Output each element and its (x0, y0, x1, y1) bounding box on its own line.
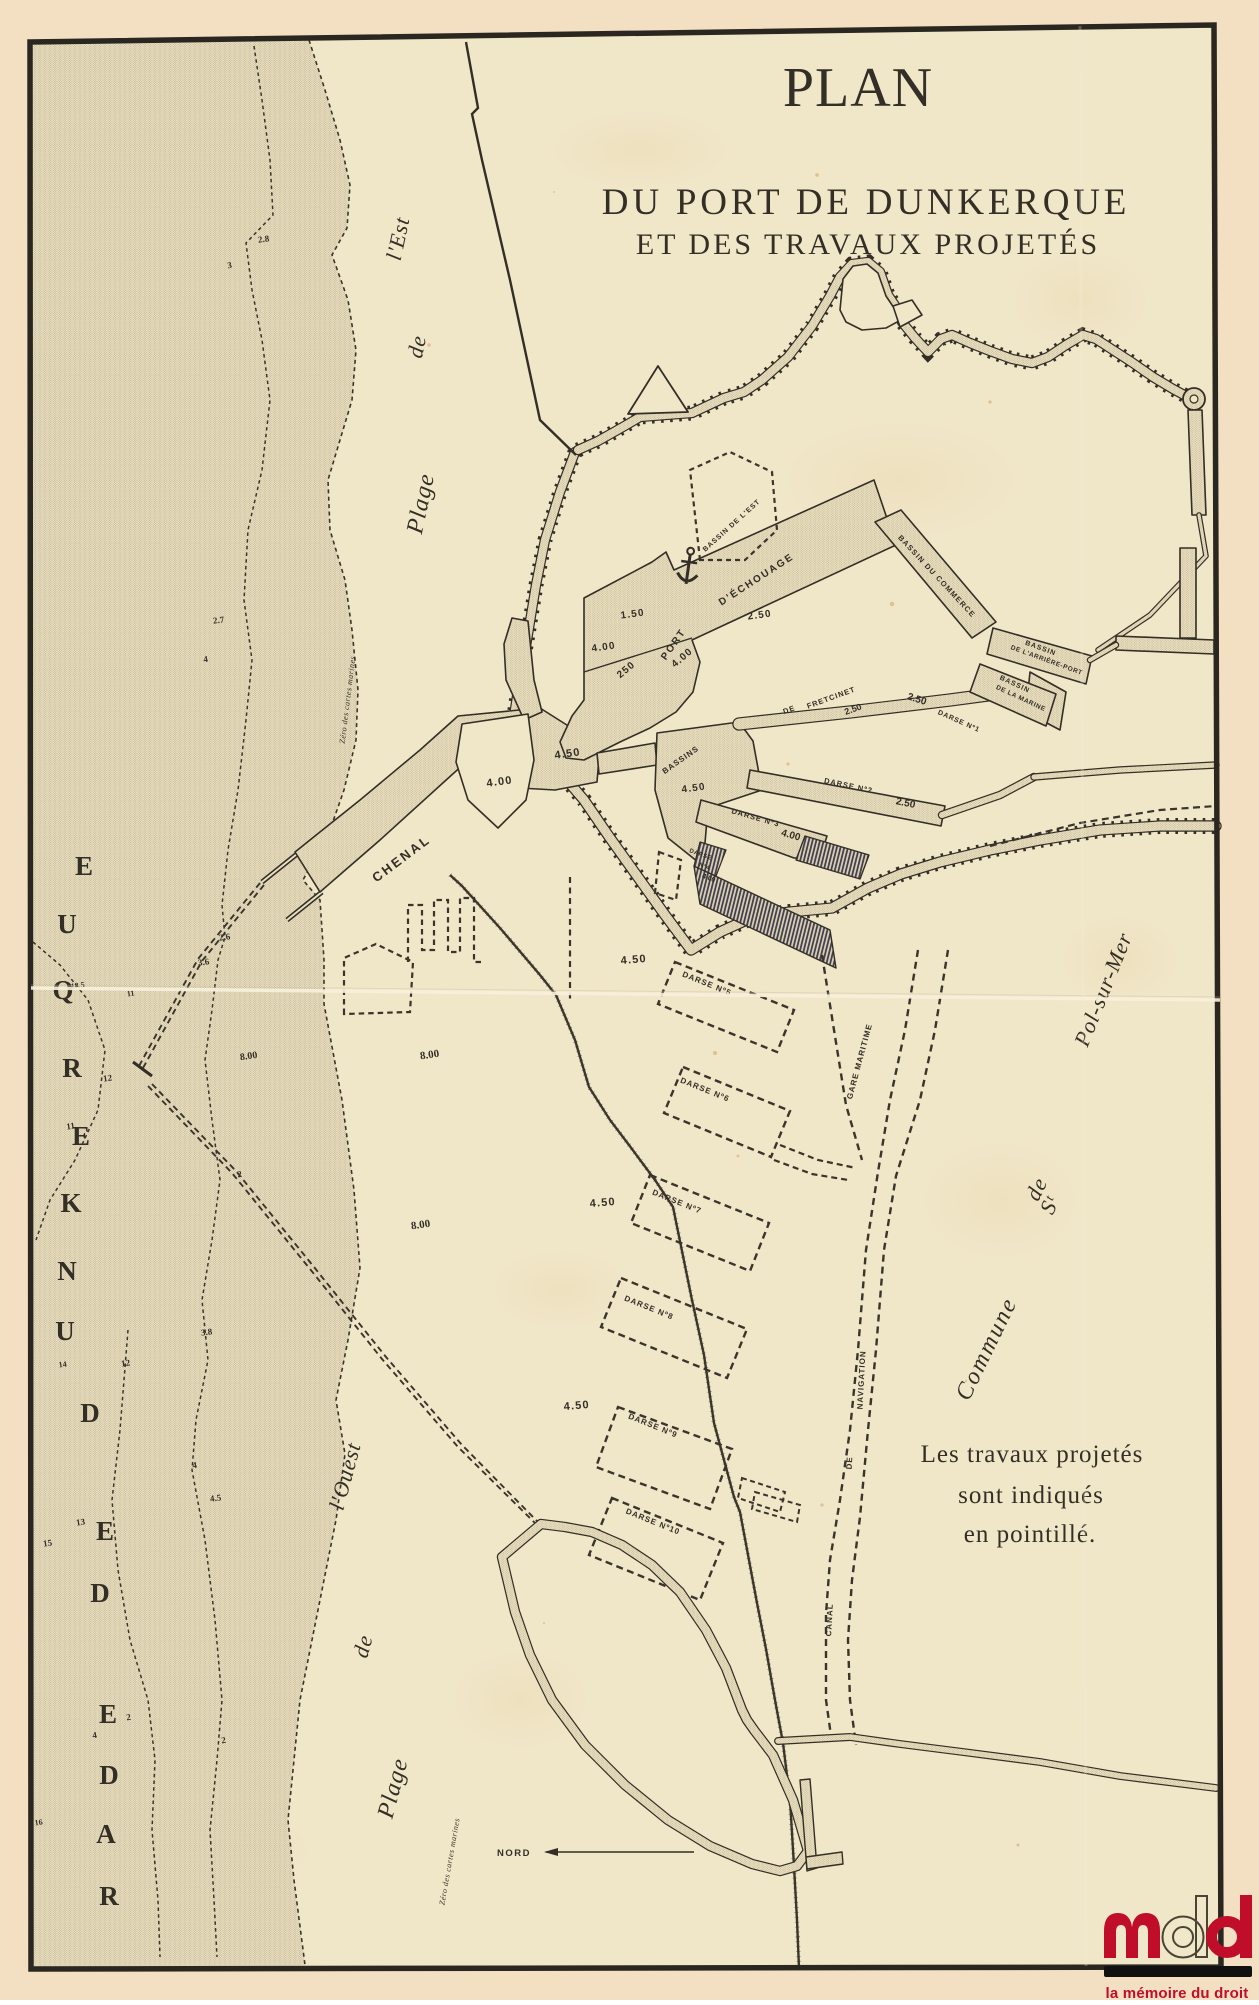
svg-text:2.8: 2.8 (257, 233, 270, 245)
svg-text:R: R (99, 1881, 119, 1911)
svg-text:E: E (75, 851, 93, 881)
svg-text:4.50: 4.50 (563, 1399, 590, 1413)
svg-text:DU PORT DE DUNKERQUE: DU PORT DE DUNKERQUE (602, 182, 1130, 223)
svg-text:PLAN: PLAN (783, 57, 933, 119)
svg-text:4.50: 4.50 (589, 1196, 616, 1210)
svg-text:14: 14 (58, 1360, 67, 1370)
svg-text:Les travaux projetés: Les travaux projetés (921, 1441, 1144, 1468)
svg-text:16: 16 (34, 1818, 43, 1828)
svg-text:D: D (80, 1398, 100, 1428)
svg-text:2.7: 2.7 (212, 614, 225, 626)
svg-text:DE: DE (845, 1456, 855, 1470)
svg-text:la mémoire du droit: la mémoire du droit (1106, 1985, 1249, 2000)
svg-text:4.5: 4.5 (209, 1492, 222, 1504)
svg-text:E: E (99, 1699, 117, 1729)
svg-text:3.8: 3.8 (200, 1326, 213, 1338)
svg-text:R: R (62, 1053, 82, 1083)
svg-text:4.50: 4.50 (620, 953, 647, 967)
svg-text:D: D (99, 1760, 119, 1790)
svg-text:U: U (55, 1316, 75, 1346)
svg-text:CANAL: CANAL (824, 1603, 835, 1636)
svg-text:ET DES TRAVAUX PROJETÉS: ET DES TRAVAUX PROJETÉS (636, 228, 1100, 261)
svg-text:en pointillé.: en pointillé. (964, 1521, 1096, 1548)
svg-text:A: A (96, 1819, 116, 1849)
svg-text:N: N (57, 1256, 77, 1286)
svg-text:K: K (60, 1188, 81, 1218)
svg-text:D: D (90, 1578, 110, 1608)
svg-text:sont indiqués: sont indiqués (958, 1482, 1104, 1509)
svg-text:NORD: NORD (497, 1848, 531, 1859)
svg-text:U: U (57, 909, 77, 939)
svg-text:E: E (96, 1516, 114, 1546)
